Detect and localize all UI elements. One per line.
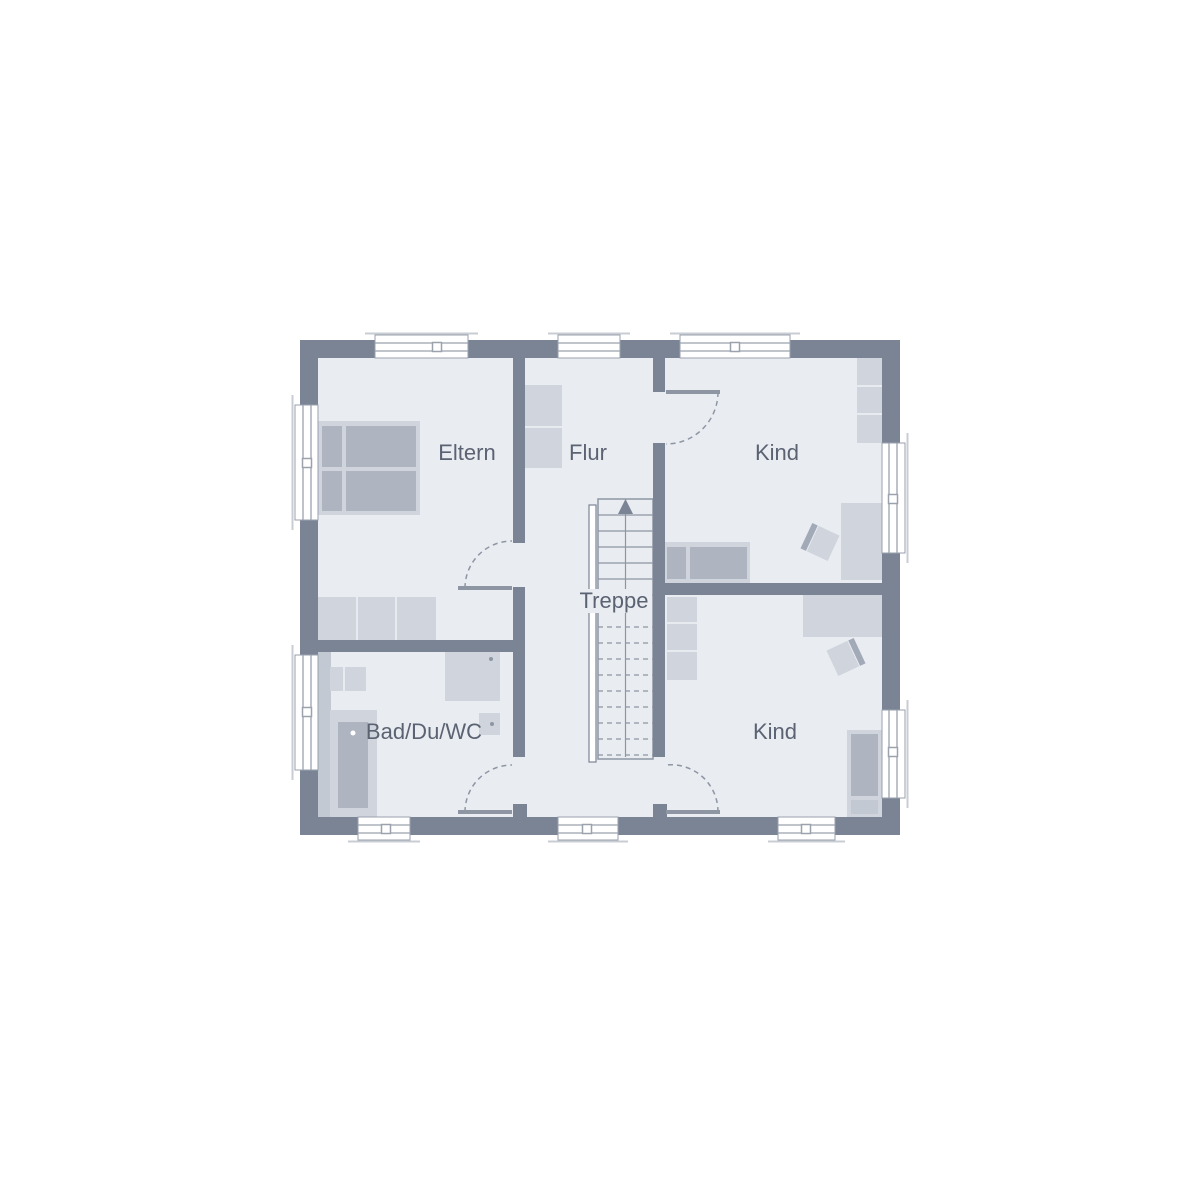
- window-handle-icon: [303, 459, 312, 468]
- window-handle-icon: [731, 343, 740, 352]
- pillow: [322, 426, 342, 467]
- wardrobe-icon: [857, 358, 882, 443]
- toilet-icon: [479, 713, 500, 735]
- window-handle-icon: [433, 343, 442, 352]
- drain: [351, 731, 356, 736]
- window: [882, 700, 909, 808]
- label-flur: Flur: [569, 440, 607, 465]
- double-bed-icon: [318, 421, 420, 515]
- label-kind-bottom: Kind: [753, 719, 797, 744]
- bed-icon: [847, 730, 882, 818]
- desk-icon: [841, 503, 882, 580]
- wall-eltern-bad: [318, 640, 513, 652]
- wall-stub: [513, 804, 527, 817]
- label-kind-top: Kind: [755, 440, 799, 465]
- window-handle-icon: [583, 825, 592, 834]
- window: [882, 433, 909, 563]
- wall-kind-divider: [653, 583, 882, 595]
- wall-stair-east: [653, 443, 665, 757]
- label-eltern: Eltern: [438, 440, 495, 465]
- shower-icon: [445, 652, 500, 701]
- window: [292, 395, 319, 530]
- mattress: [851, 734, 878, 796]
- pillow: [851, 800, 878, 814]
- mattress: [346, 426, 416, 467]
- room-flur: [523, 385, 562, 468]
- wall-eltern-flur: [513, 358, 525, 543]
- window-handle-icon: [889, 748, 898, 757]
- wall-bad-east: [513, 587, 525, 757]
- window-handle-icon: [303, 708, 312, 717]
- handrail: [589, 505, 596, 762]
- floor-plan-drawing: Eltern Flur Kind Treppe Bad/Du/WC Kind: [0, 0, 1200, 1200]
- window: [768, 817, 845, 843]
- window: [548, 333, 630, 359]
- window: [292, 645, 319, 780]
- mattress: [690, 547, 747, 579]
- washbasin-icon: [330, 667, 366, 691]
- window-handle-icon: [382, 825, 391, 834]
- wardrobe-icon: [667, 597, 697, 680]
- pillow: [322, 471, 342, 511]
- bed-icon: [663, 542, 750, 583]
- window: [365, 333, 478, 359]
- wall-stub: [653, 804, 667, 817]
- mattress: [346, 471, 416, 511]
- ledge: [318, 652, 331, 817]
- floor-plan-page: Eltern Flur Kind Treppe Bad/Du/WC Kind: [0, 0, 1200, 1200]
- cabinet-icon: [523, 385, 562, 468]
- window: [670, 333, 800, 359]
- window: [548, 817, 628, 843]
- window: [348, 817, 420, 843]
- wardrobe-icon: [318, 597, 436, 640]
- wall-stub: [653, 358, 665, 392]
- window-handle-icon: [889, 495, 898, 504]
- desk-icon: [803, 595, 882, 637]
- pillow: [667, 547, 686, 579]
- label-treppe: Treppe: [580, 588, 649, 613]
- window-handle-icon: [802, 825, 811, 834]
- label-bad: Bad/Du/WC: [366, 719, 482, 744]
